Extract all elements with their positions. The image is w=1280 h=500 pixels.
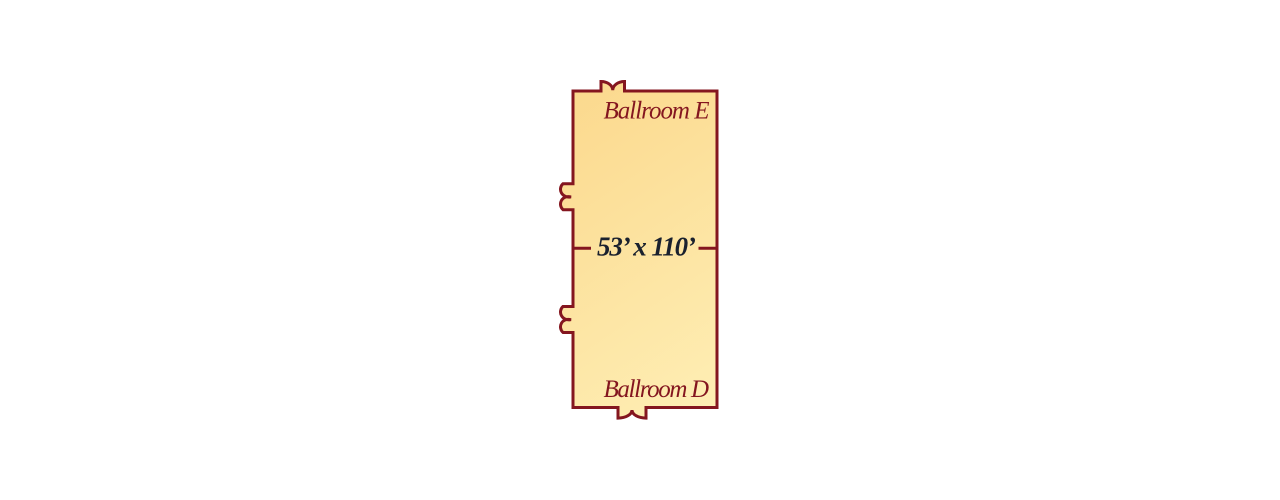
svg-text:Ballroom E: Ballroom E: [604, 97, 710, 124]
svg-text:53’ x 110’: 53’ x 110’: [597, 231, 696, 261]
svg-text:Ballroom D: Ballroom D: [604, 376, 710, 403]
